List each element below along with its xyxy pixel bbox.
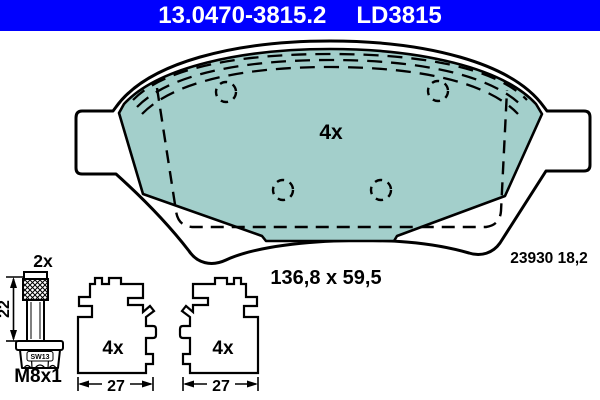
fitting-clip-drawing-1: 4x 27 [78, 278, 156, 395]
dimension-arrow-down [10, 330, 17, 341]
dimension-arrow-right [142, 381, 153, 388]
clip-width-label: 27 [212, 378, 230, 395]
dimension-arrow-left [183, 381, 194, 388]
bolt-quantity-label: 2x [33, 251, 53, 271]
clip-quantity-label: 4x [212, 338, 234, 359]
technical-drawing: 4x 136,8 x 59,5 23930 18,2 2x 22 [0, 0, 600, 400]
fitting-clip-drawing-2: 4x 27 [180, 278, 258, 395]
bolt-flange [16, 341, 63, 350]
bolt-tip [24, 272, 47, 279]
pad-quantity-label: 4x [319, 121, 343, 144]
wrench-size-label: SW13 [30, 354, 49, 361]
dimension-arrow-right [247, 381, 258, 388]
pad-dimensions-label: 136,8 x 59,5 [270, 267, 381, 289]
dimension-arrow-left [78, 381, 89, 388]
clip-quantity-label: 4x [102, 338, 124, 359]
dimension-arrow-up [10, 277, 17, 288]
wva-number-label: 23930 18,2 [510, 250, 588, 267]
bolt-knurl [23, 279, 48, 300]
bolt-length-label: 22 [0, 300, 13, 318]
brake-pad-top-view: 4x 136,8 x 59,5 23930 18,2 [76, 41, 590, 289]
guide-bolt-drawing: 2x 22 SW13 M8x1 [0, 251, 63, 387]
catalog-image: 13.0470-3815.2 LD3815 [0, 0, 600, 400]
clip-width-label: 27 [107, 378, 125, 395]
thread-size-label: M8x1 [14, 366, 62, 387]
bolt-shaft [27, 300, 44, 341]
